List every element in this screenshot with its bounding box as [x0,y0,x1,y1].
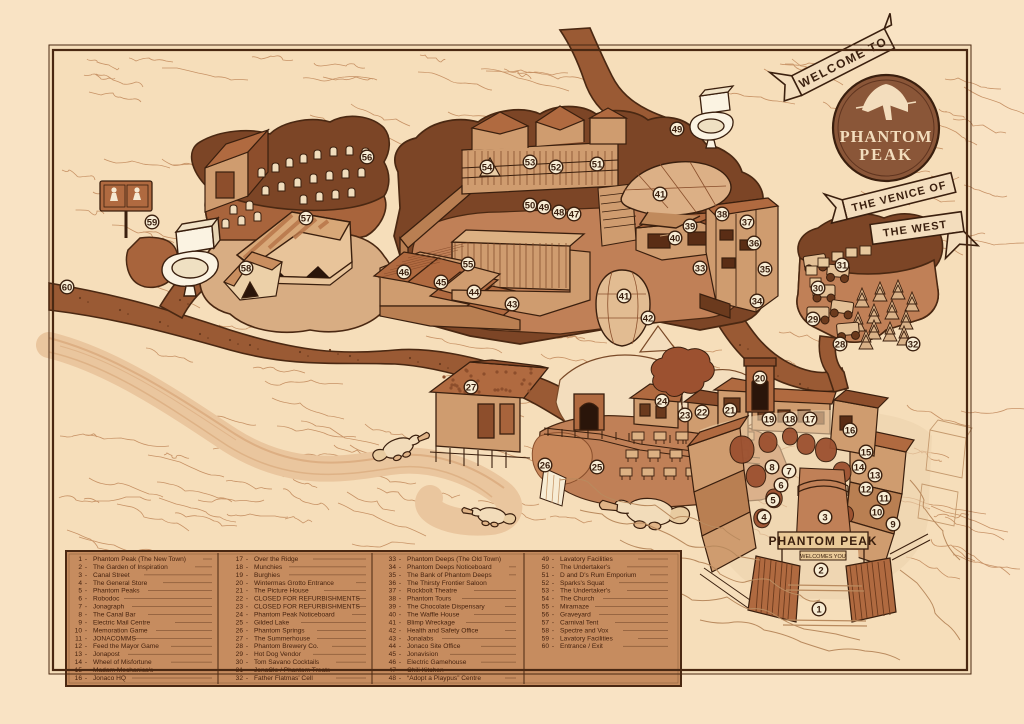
svg-text:41: 41 [655,190,666,201]
svg-text:33: 33 [695,264,706,275]
svg-text:The Picture House: The Picture House [254,588,309,595]
svg-text:30: 30 [236,659,244,666]
svg-text:7: 7 [786,467,791,478]
svg-text:-: - [85,643,87,650]
svg-text:The Bank of Phantom Deeps: The Bank of Phantom Deeps [407,572,492,579]
svg-text:-: - [85,635,87,642]
svg-text:57: 57 [301,214,312,225]
svg-text:51: 51 [592,160,603,171]
svg-text:2: 2 [818,566,823,577]
svg-text:Feed the Mayor Game: Feed the Mayor Game [93,643,159,650]
svg-text:32: 32 [908,340,919,351]
svg-text:27: 27 [466,383,477,394]
svg-text:16: 16 [845,426,856,437]
svg-text:-: - [399,612,401,619]
svg-text:14: 14 [75,659,83,666]
svg-text:51: 51 [542,572,550,579]
svg-text:The Canal Bar: The Canal Bar [93,612,136,619]
svg-text:The Church: The Church [560,596,595,603]
svg-text:46: 46 [399,268,410,279]
svg-text:Phantom Peak Noticeboard: Phantom Peak Noticeboard [254,612,335,619]
svg-text:17: 17 [236,556,244,563]
svg-text:The Undertaker's: The Undertaker's [560,564,611,571]
svg-text:Entrance / Exit: Entrance / Exit [560,643,603,650]
svg-text:59: 59 [542,635,550,642]
svg-text:-: - [552,619,554,626]
svg-text:38: 38 [389,596,397,603]
svg-text:23: 23 [236,604,244,611]
svg-text:Phantom Brewery Co.: Phantom Brewery Co. [254,643,319,650]
svg-text:-: - [246,596,248,603]
svg-text:14: 14 [854,463,865,474]
svg-text:-: - [85,659,87,666]
svg-text:-: - [399,556,401,563]
svg-text:38: 38 [717,210,728,221]
svg-text:44: 44 [389,643,397,650]
svg-text:Wintermas Grotto Entrance: Wintermas Grotto Entrance [254,580,334,587]
svg-text:6: 6 [778,481,783,492]
svg-text:18: 18 [236,564,244,571]
svg-text:Phantom Deeps (The Old Town): Phantom Deeps (The Old Town) [407,556,501,563]
svg-text:28: 28 [236,643,244,650]
svg-text:40: 40 [670,234,681,245]
svg-text:42: 42 [389,627,397,634]
svg-text:54: 54 [542,596,550,603]
svg-text:-: - [85,588,87,595]
svg-text:Tom Savano Cocktails: Tom Savano Cocktails [254,659,320,666]
svg-text:-: - [552,635,554,642]
svg-text:52: 52 [551,163,562,174]
svg-text:-: - [246,604,248,611]
svg-text:-: - [552,556,554,563]
svg-text:-: - [246,651,248,658]
svg-text:57: 57 [542,619,550,626]
svg-text:-: - [85,612,87,619]
svg-text:Spectre and Vox: Spectre and Vox [560,627,609,634]
svg-text:-: - [552,564,554,571]
svg-text:Canal Street: Canal Street [93,572,130,579]
svg-text:Sparks's Squat: Sparks's Squat [560,580,604,587]
svg-text:49: 49 [672,125,683,136]
svg-text:36: 36 [389,580,397,587]
svg-text:-: - [399,651,401,658]
svg-text:19: 19 [236,572,244,579]
svg-text:8: 8 [769,463,774,474]
svg-text:CLOSED FOR REFURBISHMENTS: CLOSED FOR REFURBISHMENTS [254,596,360,603]
svg-text:56: 56 [542,612,550,619]
svg-text:17: 17 [805,415,816,426]
svg-text:-: - [399,596,401,603]
svg-text:42: 42 [643,314,654,325]
svg-text:35: 35 [760,265,771,276]
svg-text:Rockbolt Theatre: Rockbolt Theatre [407,588,457,595]
svg-text:-: - [246,612,248,619]
svg-text:Munchies: Munchies [254,564,283,571]
svg-text:18: 18 [785,415,796,426]
svg-text:26: 26 [236,627,244,634]
svg-text:53: 53 [525,158,536,169]
svg-text:21: 21 [725,406,736,417]
svg-text:-: - [552,580,554,587]
svg-text:-: - [399,635,401,642]
svg-text:13: 13 [870,471,881,482]
svg-text:19: 19 [764,415,775,426]
svg-text:-: - [246,556,248,563]
svg-text:9: 9 [890,520,895,531]
svg-text:-: - [552,572,554,579]
svg-text:-: - [552,627,554,634]
svg-text:Miramaze: Miramaze [560,604,589,611]
svg-text:Lavatory Facilities: Lavatory Facilities [560,556,613,563]
svg-text:8: 8 [78,612,82,619]
svg-text:D and D's Rum Emporium: D and D's Rum Emporium [560,572,637,579]
svg-text:1: 1 [816,605,822,616]
svg-text:11: 11 [879,494,890,505]
svg-text:Jonaco Site Office: Jonaco Site Office [407,643,461,650]
svg-text:-: - [246,580,248,587]
svg-text:Jonapost: Jonapost [93,651,120,658]
svg-text:-: - [552,588,554,595]
svg-text:2: 2 [78,564,82,571]
svg-text:-: - [85,564,87,571]
svg-text:Wheel of Misfortune: Wheel of Misfortune [93,659,152,666]
svg-text:Gilded Lake: Gilded Lake [254,619,290,626]
svg-text:12: 12 [75,643,83,650]
svg-text:7: 7 [78,604,82,611]
svg-text:Jonaco HQ: Jonaco HQ [93,675,126,682]
svg-text:The Thirsty Frontier Saloon: The Thirsty Frontier Saloon [407,580,487,587]
svg-text:25: 25 [592,463,603,474]
svg-text:-: - [552,596,554,603]
svg-text:Memoration Game: Memoration Game [93,627,148,634]
svg-text:16: 16 [75,675,83,682]
svg-text:-: - [399,675,401,682]
svg-text:Phantom Tours: Phantom Tours [407,596,452,603]
svg-text:26: 26 [540,461,551,472]
svg-text:24: 24 [657,397,668,408]
svg-text:45: 45 [436,278,447,289]
svg-text:PHANTOM PEAK: PHANTOM PEAK [768,534,877,548]
svg-text:Electric Gamehouse: Electric Gamehouse [407,659,467,666]
svg-text:-: - [552,604,554,611]
svg-text:Lavatory Facilities: Lavatory Facilities [560,635,613,642]
svg-text:32: 32 [236,675,244,682]
svg-text:29: 29 [808,315,819,326]
svg-text:-: - [246,635,248,642]
svg-text:-: - [246,564,248,571]
svg-text:53: 53 [542,588,550,595]
svg-text:9: 9 [78,619,82,626]
svg-text:11: 11 [75,635,82,642]
svg-text:-: - [246,627,248,634]
svg-text:5: 5 [770,496,776,507]
svg-text:54: 54 [482,163,493,174]
svg-text:Graveyard: Graveyard [560,612,591,619]
svg-text:-: - [552,612,554,619]
svg-text:Blimp Wreckage: Blimp Wreckage [407,619,455,626]
svg-text:56: 56 [362,153,373,164]
svg-text:58: 58 [241,264,252,275]
svg-text:-: - [246,659,248,666]
svg-text:Health and Safety Office: Health and Safety Office [407,627,479,634]
svg-text:37: 37 [389,588,397,595]
svg-text:48: 48 [389,675,397,682]
svg-text:10: 10 [872,508,883,519]
svg-text:3: 3 [822,513,827,524]
svg-text:“Adopt a Playpus” Centre: “Adopt a Playpus” Centre [407,675,481,682]
svg-text:49: 49 [539,203,550,214]
svg-text:-: - [399,564,401,571]
svg-text:CLOSED FOR REFURBISHMENTS: CLOSED FOR REFURBISHMENTS [254,604,360,611]
svg-text:31: 31 [837,261,848,272]
svg-text:50: 50 [525,201,536,212]
svg-text:-: - [399,604,401,611]
svg-text:The Undertaker's: The Undertaker's [560,588,611,595]
svg-text:28: 28 [835,340,846,351]
svg-text:-: - [85,572,87,579]
svg-text:45: 45 [389,651,397,658]
svg-text:52: 52 [542,580,550,587]
svg-text:Hot Dog Vendor: Hot Dog Vendor [254,651,302,658]
svg-text:Burghies: Burghies [254,572,281,579]
svg-text:5: 5 [78,588,82,595]
svg-text:35: 35 [389,572,397,579]
svg-text:21: 21 [236,588,244,595]
svg-text:-: - [85,604,87,611]
svg-text:Jonavision: Jonavision [407,651,438,658]
svg-text:Phantom Deeps Noticeboard: Phantom Deeps Noticeboard [407,564,492,571]
svg-text:Jonagraph: Jonagraph [93,604,124,611]
svg-text:40: 40 [389,612,397,619]
svg-text:39: 39 [685,222,696,233]
svg-text:12: 12 [861,485,872,496]
svg-text:-: - [399,627,401,634]
svg-text:Father Flatmas' Cell: Father Flatmas' Cell [254,675,313,682]
svg-text:22: 22 [236,596,244,603]
svg-text:1: 1 [78,556,82,563]
svg-text:55: 55 [463,260,474,271]
svg-text:13: 13 [75,651,83,658]
svg-text:58: 58 [542,627,550,634]
svg-text:37: 37 [742,218,753,229]
svg-text:43: 43 [507,300,518,311]
svg-text:48: 48 [554,208,565,219]
svg-text:-: - [246,675,248,682]
svg-text:The Garden of Inspiration: The Garden of Inspiration [93,564,168,571]
svg-text:-: - [399,619,401,626]
svg-text:-: - [399,588,401,595]
svg-text:15: 15 [861,448,872,459]
svg-text:36: 36 [749,239,760,250]
svg-text:Phantom Peak (The New Town): Phantom Peak (The New Town) [93,556,186,563]
svg-text:6: 6 [78,596,82,603]
svg-text:Robodoc: Robodoc [93,596,120,603]
svg-text:WELCOMES YOU: WELCOMES YOU [800,554,845,560]
svg-text:24: 24 [236,612,244,619]
svg-text:The Summerhouse: The Summerhouse [254,635,310,642]
svg-text:50: 50 [542,564,550,571]
svg-text:-: - [246,572,248,579]
svg-text:-: - [85,651,87,658]
svg-text:59: 59 [147,218,158,229]
svg-text:41: 41 [619,292,630,303]
svg-text:34: 34 [752,297,763,308]
svg-text:3: 3 [78,572,82,579]
svg-text:20: 20 [755,374,766,385]
svg-text:27: 27 [236,635,244,642]
svg-text:-: - [85,627,87,634]
svg-text:39: 39 [389,604,397,611]
svg-text:Over the Ridge: Over the Ridge [254,556,299,563]
svg-text:-: - [399,643,401,650]
svg-text:10: 10 [75,627,83,634]
svg-text:4: 4 [761,513,767,524]
svg-text:-: - [246,588,248,595]
svg-text:-: - [399,572,401,579]
svg-text:22: 22 [697,408,708,419]
svg-text:-: - [85,675,87,682]
svg-text:60: 60 [542,643,550,650]
svg-text:34: 34 [389,564,397,571]
svg-text:-: - [399,580,401,587]
svg-text:Phantom Peaks: Phantom Peaks [93,588,140,595]
svg-text:-: - [85,619,87,626]
svg-text:60: 60 [62,283,73,294]
svg-text:20: 20 [236,580,244,587]
svg-text:-: - [85,556,87,563]
svg-text:Electric Mail Centre: Electric Mail Centre [93,619,150,626]
svg-text:JONACOMMS: JONACOMMS [93,635,136,642]
svg-text:Phantom Springs: Phantom Springs [254,627,305,634]
svg-text:46: 46 [389,659,397,666]
svg-text:Jonalabs: Jonalabs [407,635,434,642]
svg-text:The General Store: The General Store [93,580,148,587]
svg-text:-: - [399,659,401,666]
svg-text:-: - [246,643,248,650]
svg-text:PHANTOM: PHANTOM [840,127,933,146]
svg-text:30: 30 [813,284,824,295]
svg-text:41: 41 [389,619,397,626]
svg-text:49: 49 [542,556,550,563]
svg-text:The Waffle House: The Waffle House [407,612,460,619]
svg-text:PEAK: PEAK [859,145,913,164]
svg-text:44: 44 [469,288,480,299]
svg-text:23: 23 [680,411,691,422]
svg-text:43: 43 [389,635,397,642]
svg-text:55: 55 [542,604,550,611]
svg-text:29: 29 [236,651,244,658]
svg-text:25: 25 [236,619,244,626]
svg-text:The Chocolate Dispensary: The Chocolate Dispensary [407,604,485,611]
svg-text:4: 4 [78,580,82,587]
svg-text:-: - [246,619,248,626]
svg-text:-: - [552,643,554,650]
svg-text:33: 33 [389,556,397,563]
svg-text:-: - [85,580,87,587]
svg-text:47: 47 [569,210,580,221]
svg-text:-: - [85,596,87,603]
svg-text:Carnival Tent: Carnival Tent [560,619,599,626]
